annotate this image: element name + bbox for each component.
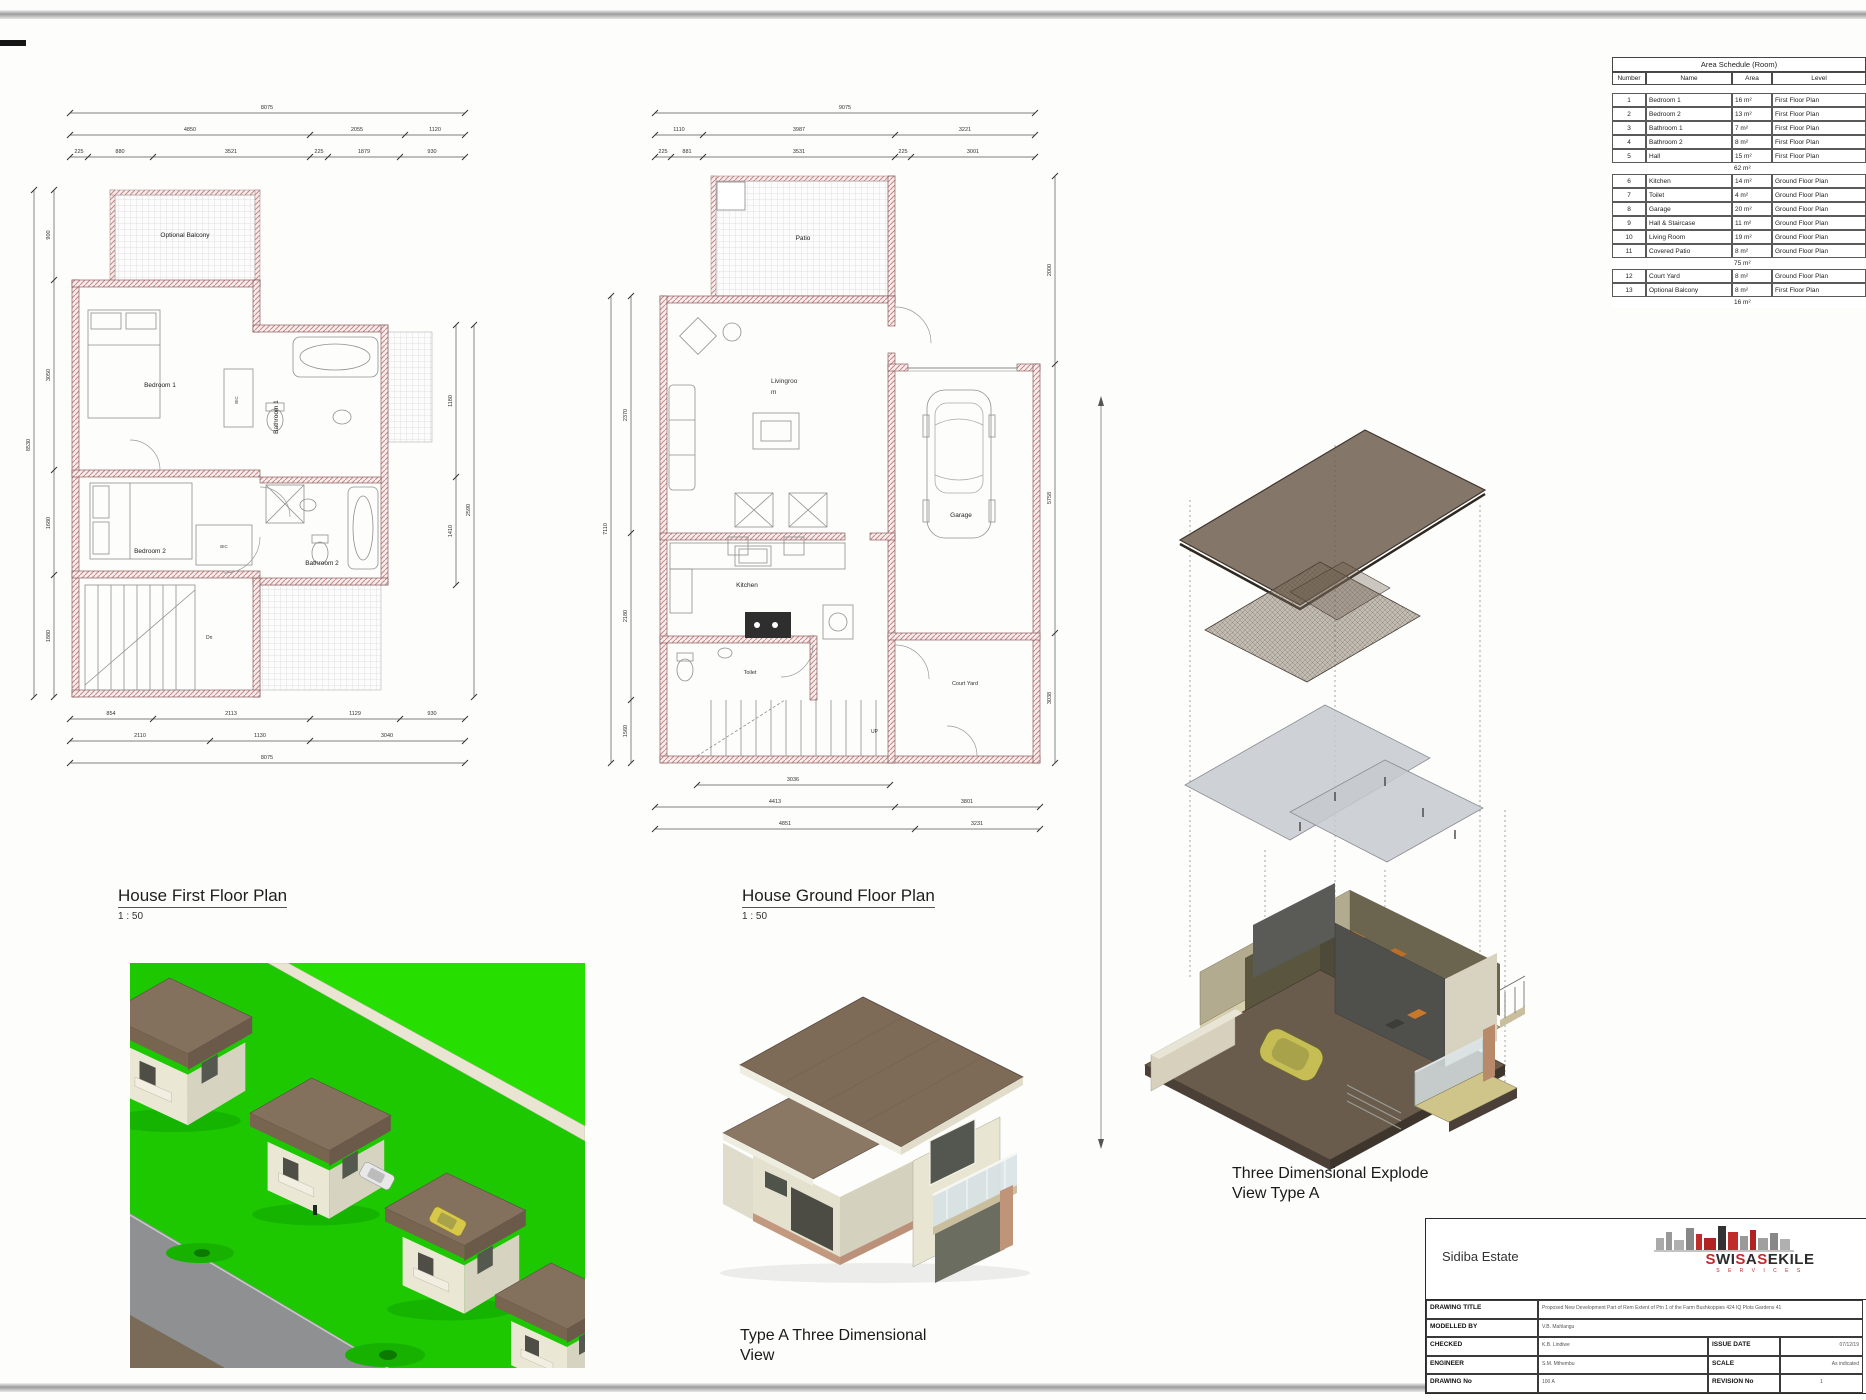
area-schedule-cell: 7: [1612, 188, 1646, 202]
area-schedule-cell: 8 m²: [1732, 283, 1772, 297]
area-schedule-cell: 20 m²: [1732, 202, 1772, 216]
area-schedule-cell: 12: [1612, 269, 1646, 283]
type-a-view-label-line2: View: [740, 1346, 1010, 1366]
ground-floor-patio: Patio: [711, 176, 895, 303]
explode-view-label: Three Dimensional Explode View Type A: [1232, 1164, 1502, 1204]
area-schedule-cell: Toilet: [1646, 188, 1732, 202]
logo-letter: S: [1757, 1251, 1768, 1268]
logo-letter: W: [1716, 1251, 1731, 1268]
logo-tagline: S E R V I C E S: [1654, 1268, 1866, 1274]
logo-letter: S: [1706, 1251, 1717, 1268]
area-schedule-subtotal-cell: [1646, 297, 1732, 308]
room-label: Bedroom 1: [144, 382, 176, 389]
dim-label: 225: [658, 149, 667, 155]
area-schedule-cell: Ground Floor Plan: [1772, 269, 1866, 283]
area-schedule-header-cell: Number: [1612, 72, 1646, 85]
engineer-value: S.M. Mthembu: [1538, 1356, 1708, 1375]
dim-label: 3221: [959, 127, 971, 133]
room-label: Bathroom 1: [273, 400, 280, 434]
area-schedule-subtotal-cell: [1646, 163, 1732, 174]
area-schedule-subtotal-cell: 62 m²: [1732, 163, 1772, 174]
area-schedule-cell: Ground Floor Plan: [1772, 216, 1866, 230]
area-schedule-cell: Ground Floor Plan: [1772, 188, 1866, 202]
type-a-view-drawing: [695, 965, 1045, 1295]
area-schedule-cell: Bathroom 1: [1646, 121, 1732, 135]
area-schedule-cell: 15 m²: [1732, 149, 1772, 163]
area-schedule-cell: Kitchen: [1646, 174, 1732, 188]
area-schedule-cell: 13 m²: [1732, 107, 1772, 121]
area-schedule-header-cell: Name: [1646, 72, 1732, 85]
dim-label: 3036: [787, 777, 799, 783]
area-schedule-cell: 8 m²: [1732, 135, 1772, 149]
logo-letter: L: [1794, 1251, 1804, 1268]
first-floor-plan-drawing: 8075 4850 2055 1120 225 880 3521 225 187…: [10, 85, 500, 875]
dim-label: 2180: [623, 610, 629, 622]
area-schedule-cell: Ground Floor Plan: [1772, 244, 1866, 258]
area-schedule-cell: 13: [1612, 283, 1646, 297]
area-schedule-cell: 4 m²: [1732, 188, 1772, 202]
area-schedule-row: 5Hall15 m²First Floor Plan: [1612, 149, 1866, 163]
sheet-corner-mark: [0, 40, 26, 46]
project-name: Sidiba Estate: [1426, 1219, 1654, 1299]
area-schedule-subtotal-row: 16 m²: [1612, 297, 1866, 308]
first-floor-plan-scale: 1 : 50: [118, 911, 287, 922]
dim-label: 1879: [358, 149, 370, 155]
dim-label: 3001: [967, 149, 979, 155]
area-schedule-cell: Ground Floor Plan: [1772, 174, 1866, 188]
room-label: Toilet: [744, 670, 757, 676]
area-schedule-cell: Bedroom 2: [1646, 107, 1732, 121]
first-floor-plan-title-block: House First Floor Plan 1 : 50: [118, 886, 287, 922]
area-schedule-cell: First Floor Plan: [1772, 283, 1866, 297]
logo-letter: A: [1746, 1251, 1757, 1268]
area-schedule-subtotal-cell: [1612, 258, 1646, 269]
height-dimension-line: [1098, 396, 1104, 1149]
dim-label: 3987: [793, 127, 805, 133]
explode-roof: [1180, 430, 1485, 682]
revision-value: 1: [1780, 1374, 1863, 1393]
dim-label: 1120: [429, 127, 441, 133]
dim-label: 854: [106, 711, 115, 717]
explode-view-label-line2: View Type A: [1232, 1184, 1502, 1204]
room-label: Court Yard: [952, 681, 978, 687]
ground-floor-plan-title: House Ground Floor Plan: [742, 886, 935, 908]
dim-label: 4850: [184, 127, 196, 133]
checked-value: K.B. Lindiwe: [1538, 1337, 1708, 1356]
modelled-by-label: MODELLED BY: [1426, 1319, 1538, 1338]
logo-letter: E: [1768, 1251, 1779, 1268]
estate-render-image: [130, 963, 585, 1368]
area-schedule-cell: 5: [1612, 149, 1646, 163]
explode-view-label-line1: Three Dimensional Explode: [1232, 1164, 1502, 1184]
dim-label: 2370: [623, 409, 629, 421]
dim-label: 7110: [603, 523, 609, 535]
dim-label: 3050: [46, 369, 52, 381]
area-schedule-subtotal-cell: [1612, 297, 1646, 308]
area-schedule-cell: 11: [1612, 244, 1646, 258]
stairs-direction-label: Dn: [206, 635, 213, 641]
room-label: Kitchen: [736, 582, 758, 589]
area-schedule-header-cell: Area: [1732, 72, 1772, 85]
company-logo: SWISASEKILE S E R V I C E S: [1654, 1219, 1866, 1299]
dim-label: 8530: [26, 439, 32, 451]
ground-floor-furniture: [669, 307, 995, 756]
area-schedule-cell: Bathroom 2: [1646, 135, 1732, 149]
area-schedule-subtotal-cell: [1612, 163, 1646, 174]
logo-letter: K: [1778, 1251, 1789, 1268]
dim-label: 1129: [349, 711, 361, 717]
dim-label: 3801: [961, 799, 973, 805]
area-schedule-subtotal-cell: [1772, 297, 1866, 308]
modelled-by-value: V.B. Mahlangu: [1538, 1319, 1863, 1338]
area-schedule-row: 13Optional Balcony8 m²First Floor Plan: [1612, 283, 1866, 297]
area-schedule-rows: 1Bedroom 116 m²First Floor Plan2Bedroom …: [1612, 93, 1866, 308]
ground-floor-plan-scale: 1 : 50: [742, 911, 935, 922]
dim-label: 1680: [46, 517, 52, 529]
dim-label: 3521: [225, 149, 237, 155]
title-block: Sidiba Estate SWISASEKILE S E R V: [1425, 1218, 1866, 1394]
roof-hatch: [388, 332, 432, 442]
area-schedule-row: 1Bedroom 116 m²First Floor Plan: [1612, 93, 1866, 107]
checked-label: CHECKED: [1426, 1337, 1538, 1356]
area-schedule-cell: Court Yard: [1646, 269, 1732, 283]
dim-label: 3038: [1047, 692, 1053, 704]
area-schedule-cell: 7 m²: [1732, 121, 1772, 135]
area-schedule-row: 12Court Yard8 m²Ground Floor Plan: [1612, 269, 1866, 283]
explode-floor-slab: [1185, 705, 1483, 862]
logo-wordmark: SWISASEKILE: [1654, 1252, 1866, 1267]
dim-label: 2110: [134, 733, 146, 739]
room-label: m: [771, 389, 776, 396]
area-schedule-cell: Ground Floor Plan: [1772, 230, 1866, 244]
first-floor-plan-title: House First Floor Plan: [118, 886, 287, 908]
area-schedule-cell: Hall & Staircase: [1646, 216, 1732, 230]
dim-label: 880: [115, 149, 124, 155]
area-schedule-cell: Ground Floor Plan: [1772, 202, 1866, 216]
drawing-title-value: Proposed New Development Part of Rem Ext…: [1538, 1300, 1863, 1319]
area-schedule-header-cell: Level: [1772, 72, 1866, 85]
logo-letter: E: [1804, 1251, 1815, 1268]
area-schedule-cell: First Floor Plan: [1772, 135, 1866, 149]
city-skyline-logo-icon: [1654, 1224, 1794, 1252]
closet-label: BIC: [234, 396, 239, 404]
area-schedule-cell: First Floor Plan: [1772, 107, 1866, 121]
dim-label: 2000: [1047, 264, 1053, 276]
room-label: Bedroom 2: [134, 548, 166, 555]
area-schedule-cell: Covered Patio: [1646, 244, 1732, 258]
room-label: Optional Balcony: [160, 232, 210, 239]
area-schedule-cell: 16 m²: [1732, 93, 1772, 107]
type-a-view-label: Type A Three Dimensional View: [740, 1326, 1010, 1366]
area-schedule-subtotal-cell: 75 m²: [1732, 258, 1772, 269]
dim-label: 9075: [839, 105, 851, 111]
area-schedule-cell: Living Room: [1646, 230, 1732, 244]
dim-label: 4851: [779, 821, 791, 827]
area-schedule-table: Area Schedule (Room) NumberNameAreaLevel…: [1612, 57, 1866, 308]
scale-value: As indicated: [1780, 1356, 1863, 1375]
area-schedule-cell: Optional Balcony: [1646, 283, 1732, 297]
area-schedule-cell: First Floor Plan: [1772, 149, 1866, 163]
first-floor-balcony: Optional Balcony: [110, 190, 260, 285]
area-schedule-row: 10Living Room19 m²Ground Floor Plan: [1612, 230, 1866, 244]
sheet-top-edge: [0, 10, 1866, 19]
area-schedule-subtotal-cell: [1646, 258, 1732, 269]
area-schedule-cell: 8: [1612, 202, 1646, 216]
dim-label: 1130: [254, 733, 266, 739]
dim-label: 1880: [46, 630, 52, 642]
revision-label: REVISION No: [1708, 1374, 1780, 1393]
area-schedule-cell: 4: [1612, 135, 1646, 149]
closet-label: BIC: [220, 544, 228, 549]
dim-label: 900: [46, 230, 52, 239]
type-a-view-label-line1: Type A Three Dimensional: [740, 1326, 1010, 1346]
dim-label: 225: [898, 149, 907, 155]
area-schedule-cell: First Floor Plan: [1772, 121, 1866, 135]
room-label: Garage: [950, 512, 972, 519]
roof-hatch: [260, 585, 381, 690]
area-schedule-row: 2Bedroom 213 m²First Floor Plan: [1612, 107, 1866, 121]
area-schedule-row: 3Bathroom 17 m²First Floor Plan: [1612, 121, 1866, 135]
dim-label: 1410: [448, 525, 454, 537]
person-figure: [313, 1205, 317, 1215]
drawing-sheet: 8075 4850 2055 1120 225 880 3521 225 187…: [0, 0, 1866, 1400]
area-schedule-cell: Bedroom 1: [1646, 93, 1732, 107]
dim-label: 225: [314, 149, 323, 155]
area-schedule-subtotal-cell: 16 m²: [1732, 297, 1772, 308]
area-schedule-cell: First Floor Plan: [1772, 93, 1866, 107]
dim-label: 4413: [769, 799, 781, 805]
area-schedule-cell: 11 m²: [1732, 216, 1772, 230]
area-schedule-row: 8Garage20 m²Ground Floor Plan: [1612, 202, 1866, 216]
dim-label: 8075: [261, 755, 273, 761]
area-schedule-subtotal-row: 75 m²: [1612, 258, 1866, 269]
area-schedule-header-row: NumberNameAreaLevel: [1612, 72, 1866, 85]
area-schedule-cell: 10: [1612, 230, 1646, 244]
area-schedule-subtotal-cell: [1772, 258, 1866, 269]
area-schedule-row: 4Bathroom 28 m²First Floor Plan: [1612, 135, 1866, 149]
area-schedule-cell: 19 m²: [1732, 230, 1772, 244]
scale-label: SCALE: [1708, 1356, 1780, 1375]
area-schedule-row: 11Covered Patio8 m²Ground Floor Plan: [1612, 244, 1866, 258]
dim-label: 930: [427, 711, 436, 717]
area-schedule-cell: 8 m²: [1732, 244, 1772, 258]
area-schedule-cell: 1: [1612, 93, 1646, 107]
room-label: Patio: [796, 235, 811, 242]
stairs-direction-label: UP: [871, 729, 879, 735]
dim-label: 3531: [793, 149, 805, 155]
area-schedule-cell: 6: [1612, 174, 1646, 188]
dim-label: 225: [74, 149, 83, 155]
dim-label: 5758: [1047, 492, 1053, 504]
area-schedule-cell: 3: [1612, 121, 1646, 135]
dim-label: 930: [427, 149, 436, 155]
ground-floor-plan-title-block: House Ground Floor Plan 1 : 50: [742, 886, 935, 922]
dim-label: 2113: [225, 711, 237, 717]
room-label: Livingroo: [771, 378, 798, 385]
area-schedule-row: 9Hall & Staircase11 m²Ground Floor Plan: [1612, 216, 1866, 230]
area-schedule-row: 7Toilet4 m²Ground Floor Plan: [1612, 188, 1866, 202]
dim-label: 1560: [623, 725, 629, 737]
area-schedule-cell: 2: [1612, 107, 1646, 121]
room-label: Bathroom 2: [305, 560, 339, 567]
engineer-label: ENGINEER: [1426, 1356, 1538, 1375]
dim-label: 3231: [971, 821, 983, 827]
exploded-view-drawing: [1085, 330, 1525, 1170]
title-block-fields: DRAWING TITLE Proposed New Development P…: [1426, 1300, 1866, 1393]
ground-floor-walls: [660, 296, 1040, 763]
dim-label: 2055: [351, 127, 363, 133]
area-schedule-subtotal-cell: [1772, 163, 1866, 174]
area-schedule-title: Area Schedule (Room): [1612, 57, 1866, 72]
ground-floor-plan-drawing: 9075 1110 3987 3221 225 881 3531 225 300…: [585, 85, 1085, 875]
area-schedule-cell: 8 m²: [1732, 269, 1772, 283]
dim-label: 1110: [673, 127, 684, 133]
dim-label: 3040: [381, 733, 393, 739]
logo-letter: S: [1735, 1251, 1746, 1268]
drawing-title-label: DRAWING TITLE: [1426, 1300, 1538, 1319]
issue-date-label: ISSUE DATE: [1708, 1337, 1780, 1356]
drawing-no-value: 100 A: [1538, 1374, 1708, 1393]
area-schedule-cell: 14 m²: [1732, 174, 1772, 188]
dim-label: 1180: [448, 395, 454, 407]
dim-label: 881: [682, 149, 691, 155]
area-schedule-cell: Hall: [1646, 149, 1732, 163]
area-schedule-subtotal-row: 62 m²: [1612, 163, 1866, 174]
dim-label: 2590: [466, 504, 472, 516]
area-schedule-cell: Garage: [1646, 202, 1732, 216]
issue-date-value: 07/12/19: [1780, 1337, 1863, 1356]
drawing-no-label: DRAWING No: [1426, 1374, 1538, 1393]
area-schedule-cell: 9: [1612, 216, 1646, 230]
area-schedule-row: 6Kitchen14 m²Ground Floor Plan: [1612, 174, 1866, 188]
dim-label: 8075: [261, 105, 273, 111]
